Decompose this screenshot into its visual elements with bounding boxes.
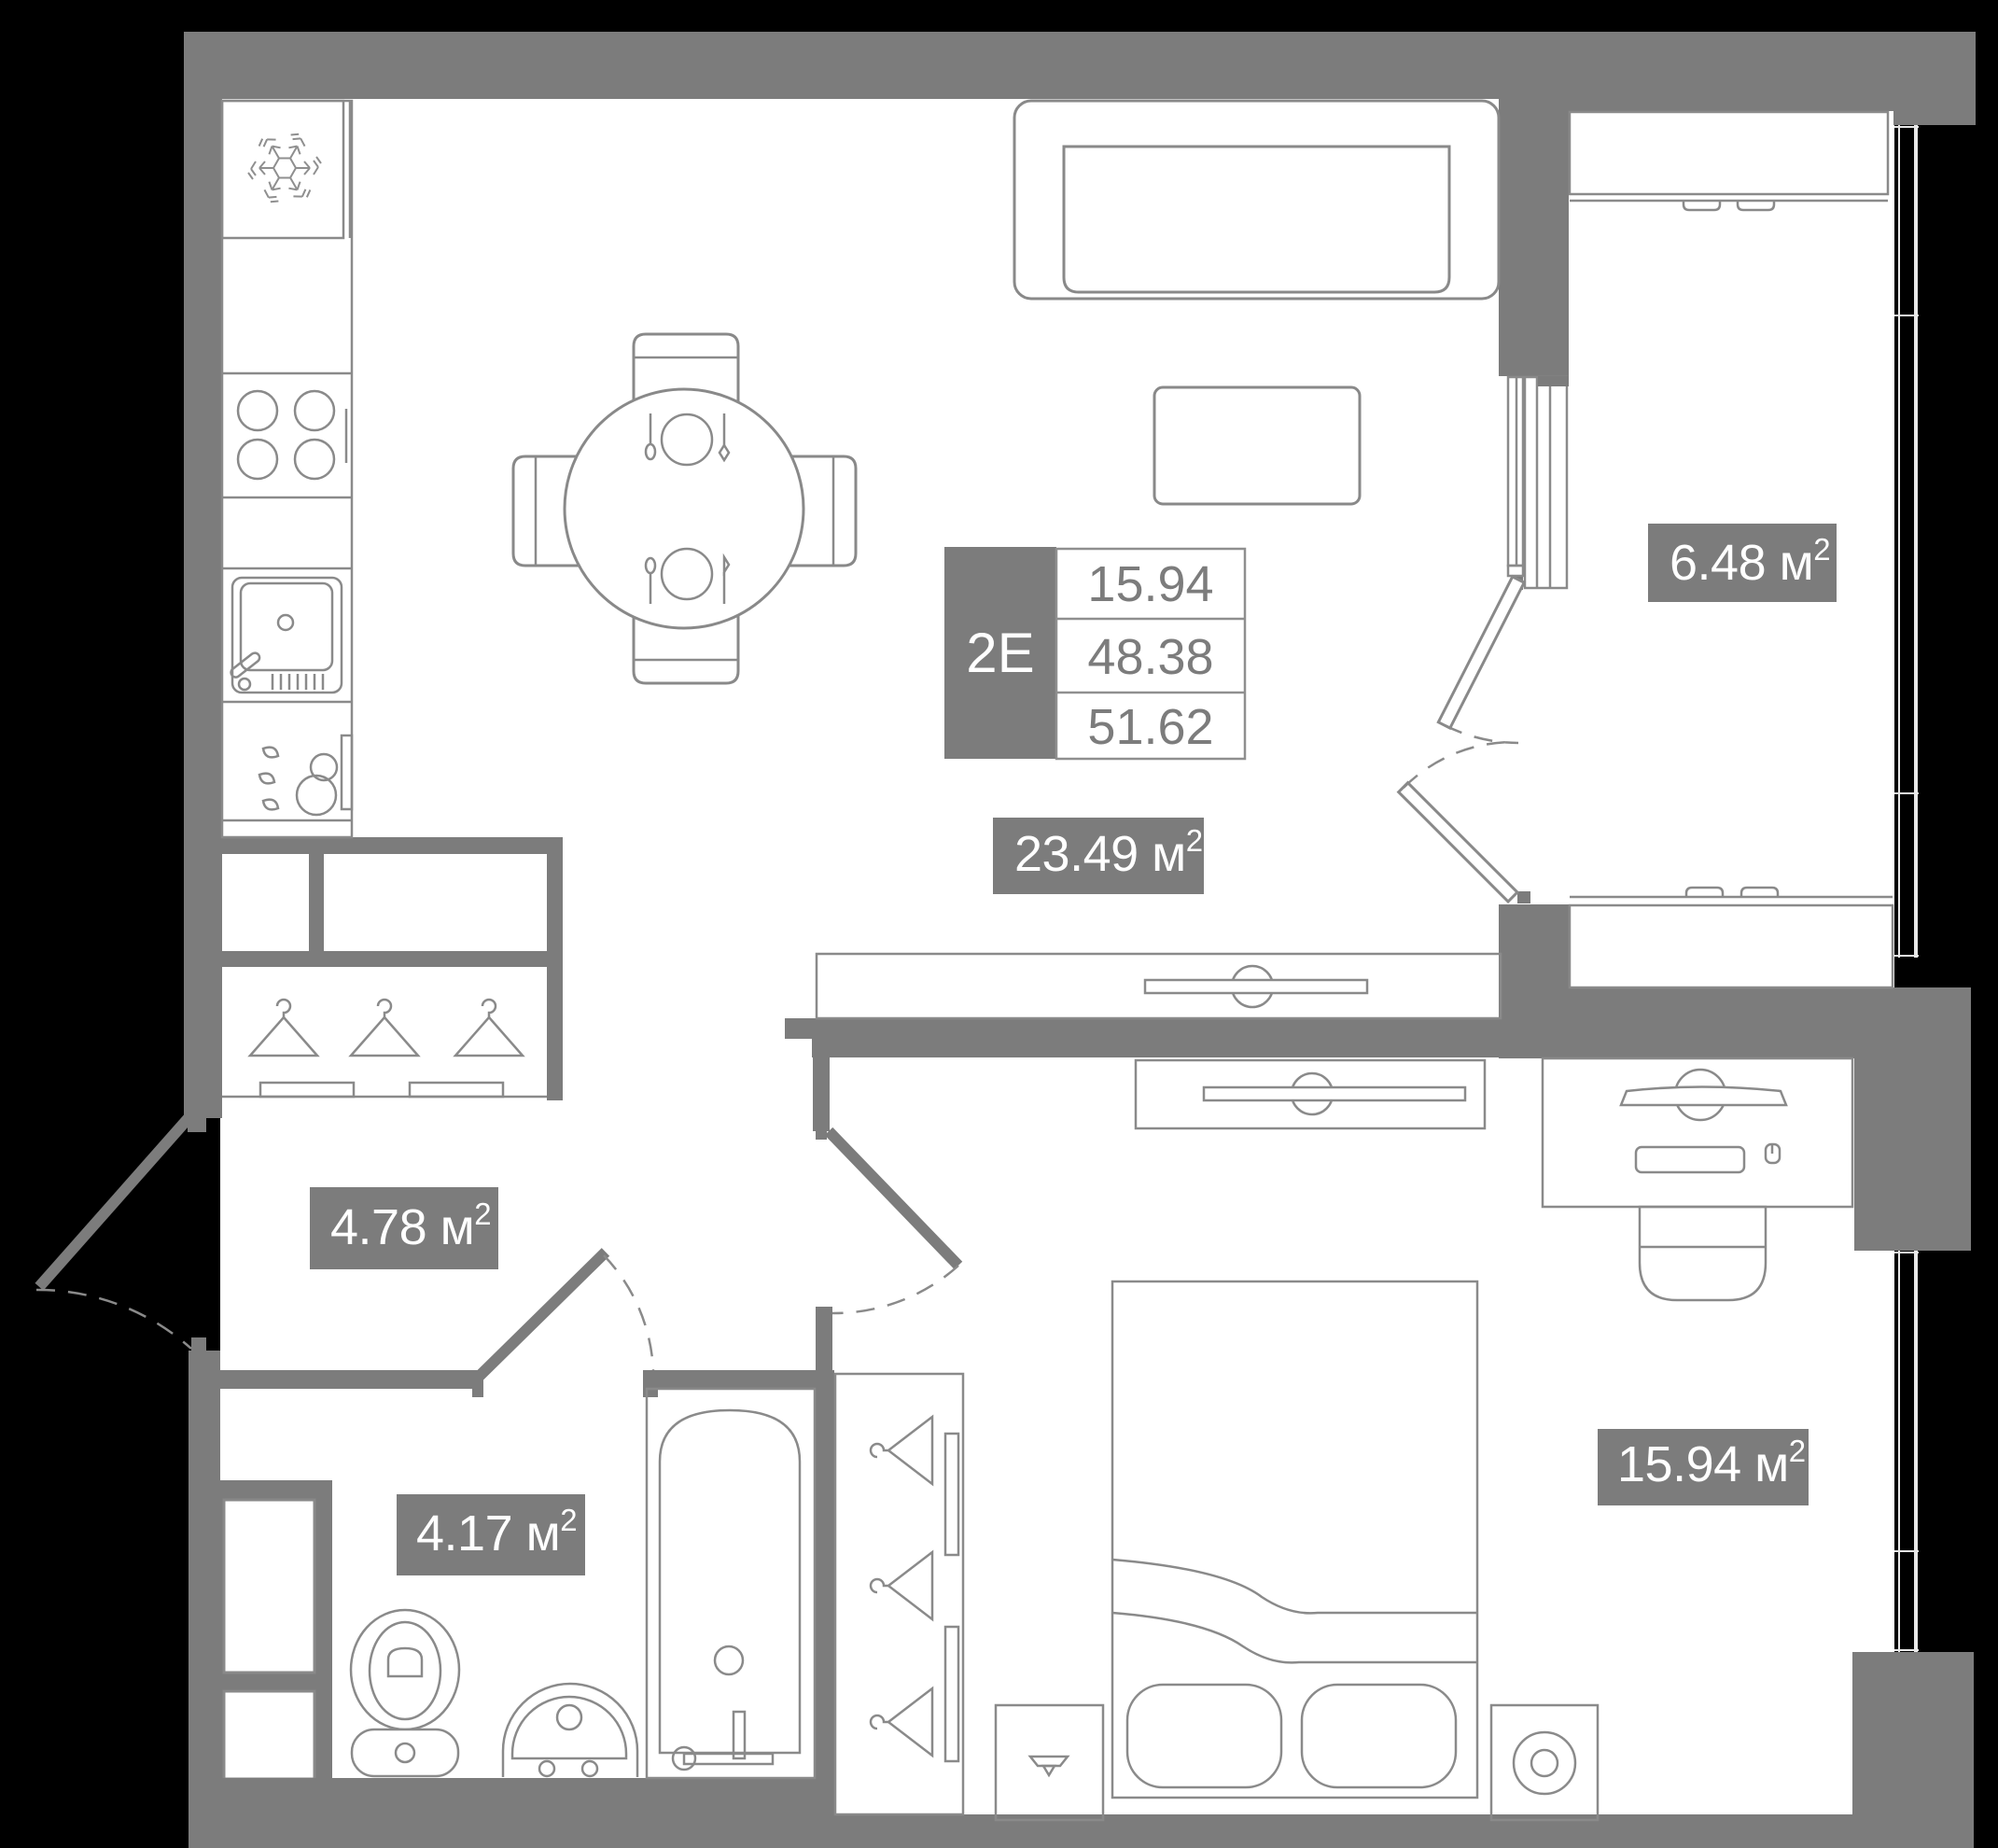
svg-text:48.38: 48.38 xyxy=(1087,629,1213,685)
svg-text:4.17 м2: 4.17 м2 xyxy=(416,1503,577,1561)
svg-text:6.48 м2: 6.48 м2 xyxy=(1670,532,1830,591)
svg-text:51.62: 51.62 xyxy=(1087,699,1213,755)
svg-text:15.94 м2: 15.94 м2 xyxy=(1617,1434,1806,1492)
svg-text:2E: 2E xyxy=(966,622,1034,684)
svg-text:23.49 м2: 23.49 м2 xyxy=(1014,823,1203,882)
svg-text:15.94: 15.94 xyxy=(1087,556,1213,612)
svg-text:4.78 м2: 4.78 м2 xyxy=(330,1197,491,1255)
